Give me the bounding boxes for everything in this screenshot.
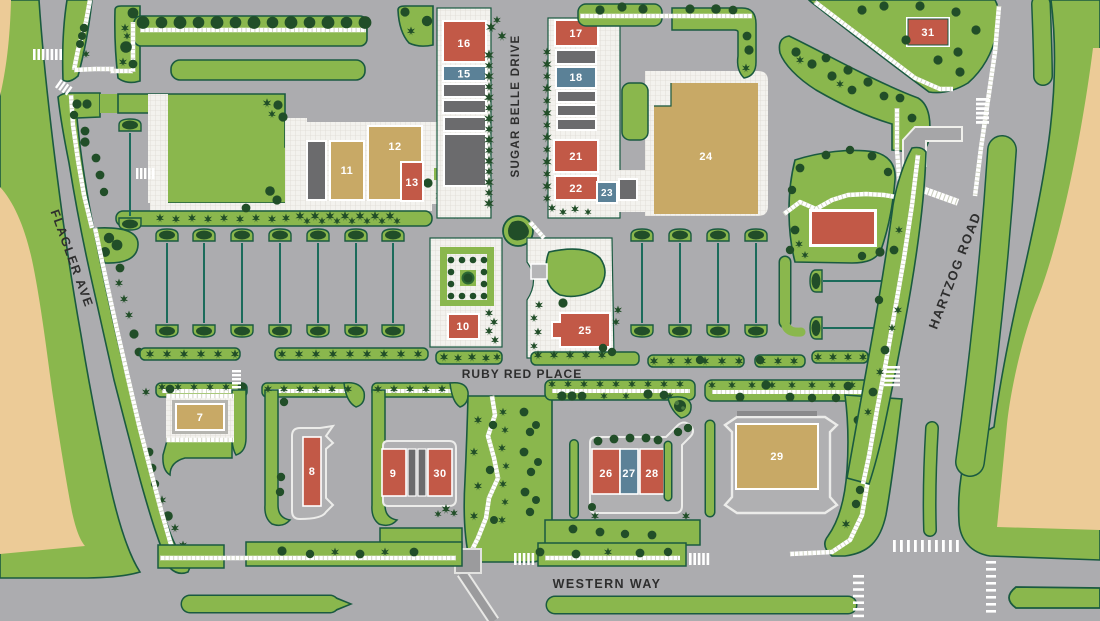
svg-text:23: 23	[601, 188, 613, 199]
svg-text:27: 27	[622, 468, 635, 480]
svg-text:7: 7	[197, 412, 204, 424]
svg-text:8: 8	[309, 466, 316, 478]
svg-text:18: 18	[569, 72, 582, 84]
svg-text:11: 11	[341, 165, 354, 177]
svg-text:16: 16	[457, 38, 470, 50]
svg-text:SUGAR BELLE DRIVE: SUGAR BELLE DRIVE	[510, 35, 522, 178]
svg-text:13: 13	[405, 177, 418, 189]
svg-text:30: 30	[433, 468, 446, 480]
svg-text:24: 24	[699, 151, 713, 163]
svg-text:28: 28	[645, 468, 658, 480]
svg-text:26: 26	[599, 468, 612, 480]
svg-text:21: 21	[569, 151, 582, 163]
svg-text:9: 9	[390, 468, 397, 480]
svg-text:WESTERN WAY: WESTERN WAY	[553, 577, 662, 591]
svg-text:25: 25	[578, 325, 591, 337]
svg-text:12: 12	[388, 141, 401, 153]
svg-text:22: 22	[569, 183, 582, 195]
svg-text:17: 17	[569, 28, 582, 40]
svg-text:29: 29	[770, 451, 783, 463]
svg-text:RUBY RED PLACE: RUBY RED PLACE	[462, 367, 582, 381]
svg-text:31: 31	[921, 27, 934, 39]
svg-text:10: 10	[456, 321, 469, 333]
svg-text:15: 15	[457, 69, 470, 81]
